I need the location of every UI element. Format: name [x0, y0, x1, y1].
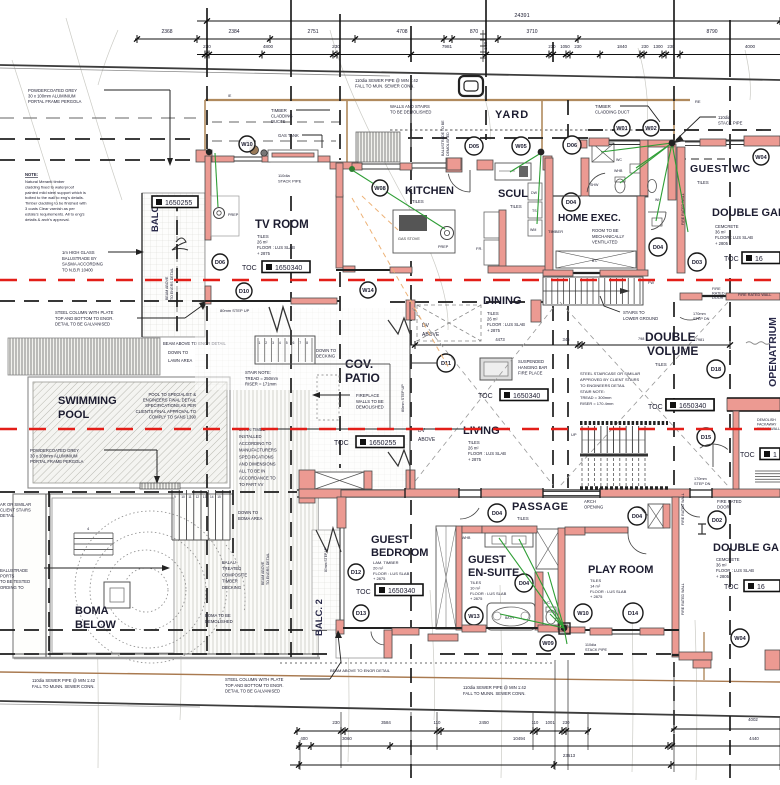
svg-text:VOLUME: VOLUME [647, 344, 698, 358]
svg-text:FLOOR : LUS SLAB: FLOOR : LUS SLAB [487, 322, 525, 327]
svg-text:16: 16 [757, 584, 765, 591]
svg-text:D05: D05 [469, 144, 479, 150]
svg-text:DOOR: DOOR [712, 296, 724, 300]
svg-text:CLADDING: CLADDING [271, 114, 293, 119]
svg-text:WALLS TO BE: WALLS TO BE [356, 399, 384, 404]
svg-text:170mm: 170mm [693, 312, 706, 316]
svg-text:FLOOR : LUS SLAB: FLOOR : LUS SLAB [715, 235, 753, 240]
svg-text:DOWN TO: DOWN TO [316, 348, 337, 353]
svg-text:PREP: PREP [438, 245, 449, 249]
svg-text:MECHANICALLY: MECHANICALLY [592, 234, 624, 239]
svg-text:BOMA: BOMA [75, 605, 109, 617]
svg-text:FALL TO MUN. SEWER CONN.: FALL TO MUN. SEWER CONN. [355, 84, 415, 89]
svg-text:SCUL: SCUL [498, 188, 528, 200]
svg-text:YARD: YARD [495, 109, 529, 121]
svg-text:4800: 4800 [263, 44, 274, 49]
svg-text:POOL: POOL [58, 409, 89, 421]
svg-text:WM: WM [530, 228, 536, 232]
svg-text:Timber cladding to be finished: Timber cladding to be finished with [25, 201, 86, 206]
svg-text:PORTS: PORTS [0, 574, 15, 579]
svg-text:B.C: B.C [592, 259, 598, 263]
svg-text:COMPLY TO SANS 1390: COMPLY TO SANS 1390 [149, 414, 197, 419]
svg-text:230: 230 [563, 720, 571, 725]
svg-text:BEAM ABOVE: BEAM ABOVE [165, 276, 169, 300]
svg-text:FALL TO MUNN. SEWER CONN.: FALL TO MUNN. SEWER CONN. [463, 691, 526, 696]
svg-text:DECKING: DECKING [222, 585, 241, 590]
svg-text:2450: 2450 [479, 720, 489, 725]
svg-text:UP: UP [571, 432, 577, 437]
svg-text:BOMA TO BE: BOMA TO BE [205, 613, 231, 618]
svg-text:ENGINEERS FINAL DETAIL: ENGINEERS FINAL DETAIL [143, 398, 197, 403]
svg-text:GUEST WC: GUEST WC [690, 163, 751, 175]
svg-text:D04: D04 [492, 511, 503, 517]
svg-text:DECKING: DECKING [316, 354, 335, 359]
svg-text:+ 2805: + 2805 [715, 241, 729, 246]
svg-text:1m HIGH GLASS: 1m HIGH GLASS [62, 250, 95, 255]
svg-text:DOOR: DOOR [717, 504, 730, 509]
svg-text:4440: 4440 [749, 736, 759, 741]
svg-text:GAS STOVE: GAS STOVE [398, 237, 420, 241]
svg-text:+ 2875: + 2875 [468, 457, 482, 462]
svg-text:DETAIL: DETAIL [0, 513, 15, 518]
svg-text:+ 2875: + 2875 [373, 576, 386, 581]
svg-text:TREAD = 300mm: TREAD = 300mm [580, 395, 612, 400]
svg-text:DEMOLISHED: DEMOLISHED [205, 619, 233, 624]
svg-text:400: 400 [300, 736, 308, 741]
svg-text:1300: 1300 [653, 44, 663, 49]
svg-text:DUCTS: DUCTS [271, 119, 286, 124]
svg-text:EN-SUITE: EN-SUITE [468, 567, 519, 579]
svg-text:4708: 4708 [396, 29, 407, 35]
svg-text:10 m²: 10 m² [470, 585, 481, 590]
svg-text:DEMOLISHED: DEMOLISHED [446, 132, 450, 156]
svg-text:SASMA ACCORDING: SASMA ACCORDING [62, 262, 103, 267]
svg-text:TILES: TILES [412, 199, 424, 204]
svg-text:D04: D04 [653, 245, 664, 251]
svg-text:BALAU: BALAU [222, 560, 236, 565]
svg-text:80mm STEP UP: 80mm STEP UP [324, 546, 328, 572]
svg-text:4473: 4473 [495, 337, 505, 342]
svg-text:2: 2 [265, 341, 267, 345]
svg-text:8790: 8790 [706, 29, 717, 35]
svg-text:W14: W14 [362, 288, 374, 294]
svg-text:POWDERCOATED GREY: POWDERCOATED GREY [30, 448, 79, 453]
svg-text:170mm: 170mm [694, 477, 707, 481]
svg-text:230: 230 [332, 720, 340, 725]
svg-text:STACK PIPE: STACK PIPE [278, 178, 302, 183]
svg-text:Natural Meranti timber: Natural Meranti timber [25, 179, 65, 184]
svg-text:TREAD = 250mm: TREAD = 250mm [245, 376, 278, 381]
svg-text:PATIO: PATIO [345, 371, 380, 385]
svg-text:12: 12 [196, 495, 200, 499]
svg-text:TILES: TILES [470, 580, 481, 585]
svg-text:FACKAWAY: FACKAWAY [757, 423, 777, 427]
svg-text:W10: W10 [577, 611, 589, 617]
svg-text:DINING: DINING [483, 295, 522, 307]
svg-text:STACK PIPE: STACK PIPE [585, 648, 608, 652]
svg-text:80mm STEP UP: 80mm STEP UP [401, 384, 405, 412]
svg-text:1050: 1050 [560, 44, 570, 49]
svg-text:HANGING BAR: HANGING BAR [518, 365, 547, 370]
svg-text:TO BE DEMOLISHED: TO BE DEMOLISHED [390, 110, 431, 115]
svg-text:TS: TS [532, 209, 537, 213]
svg-text:APPROVED BY CLIENT STAIRS: APPROVED BY CLIENT STAIRS [580, 377, 639, 382]
svg-text:STEP DN: STEP DN [694, 482, 711, 486]
svg-text:TOC: TOC [242, 265, 257, 272]
svg-text:SUSPENDED: SUSPENDED [518, 359, 544, 364]
svg-text:FIRE PLACE: FIRE PLACE [518, 371, 543, 376]
svg-text:TIMBER: TIMBER [595, 104, 611, 109]
svg-text:FALL TO MUNN. SEWER CONN.: FALL TO MUNN. SEWER CONN. [32, 684, 95, 689]
svg-text:3: 3 [272, 341, 274, 345]
svg-text:RISER = 170.4mm: RISER = 170.4mm [580, 401, 614, 406]
svg-text:ACCORDANCE TO: ACCORDANCE TO [239, 475, 276, 480]
svg-text:FLOOR : LUS SLAB: FLOOR : LUS SLAB [468, 451, 506, 456]
svg-text:ALL TO BE IN: ALL TO BE IN [239, 468, 265, 473]
svg-text:TILES: TILES [590, 578, 601, 583]
svg-text:GAS TANK: GAS TANK [278, 133, 299, 138]
svg-text:W01: W01 [616, 126, 628, 132]
svg-text:TIMBER: TIMBER [548, 229, 563, 234]
svg-text:20 m²: 20 m² [373, 565, 384, 570]
svg-text:TO N.B.R 10400: TO N.B.R 10400 [62, 267, 94, 272]
svg-text:TOP AND BOTTOM TO ENGR.: TOP AND BOTTOM TO ENGR. [55, 316, 113, 321]
svg-text:COMPOSITE: COMPOSITE [222, 572, 247, 577]
svg-text:BALUSTRADE: BALUSTRADE [0, 568, 28, 573]
svg-text:1650340: 1650340 [275, 265, 302, 272]
svg-text:3060: 3060 [342, 736, 352, 741]
svg-text:TO ENGINEERS DETAIL: TO ENGINEERS DETAIL [580, 383, 626, 388]
svg-text:ROOM TO BE: ROOM TO BE [592, 228, 619, 233]
svg-text:15: 15 [217, 495, 221, 499]
svg-text:23613: 23613 [563, 753, 576, 758]
svg-text:DOUBLE GA: DOUBLE GA [713, 542, 779, 554]
svg-text:30 x 100mm ALUMINIUM: 30 x 100mm ALUMINIUM [28, 94, 76, 99]
svg-text:26 m²: 26 m² [487, 317, 498, 322]
svg-text:cladding fixed to waterproof: cladding fixed to waterproof [25, 184, 75, 189]
svg-text:36 m²: 36 m² [716, 563, 727, 568]
svg-text:TO ENGRS DETAIL: TO ENGRS DETAIL [266, 553, 270, 585]
svg-text:TIMBER: TIMBER [222, 579, 238, 584]
svg-text:W04: W04 [734, 636, 746, 642]
svg-text:TILES: TILES [655, 362, 667, 367]
svg-text:1001: 1001 [545, 720, 555, 725]
svg-text:7981: 7981 [442, 44, 453, 49]
svg-text:+ 2875: + 2875 [257, 251, 271, 256]
svg-text:DETAIL TO BE GALVANISED: DETAIL TO BE GALVANISED [55, 322, 110, 327]
svg-text:D14: D14 [628, 611, 639, 617]
svg-text:230: 230 [574, 44, 582, 49]
svg-text:STAIRS TO: STAIRS TO [623, 310, 645, 315]
svg-text:4002: 4002 [748, 717, 758, 722]
svg-text:D15: D15 [701, 435, 711, 441]
svg-text:9: 9 [174, 495, 176, 499]
svg-text:LAWN AREA: LAWN AREA [168, 358, 192, 363]
svg-text:FLOOR : LUS SLAB: FLOOR : LUS SLAB [716, 568, 754, 573]
svg-text:CEMCRETE: CEMCRETE [716, 557, 740, 562]
svg-text:798: 798 [638, 337, 644, 341]
svg-text:3584: 3584 [381, 720, 391, 725]
svg-text:14 m²: 14 m² [590, 583, 601, 588]
svg-text:+ 2875: + 2875 [470, 596, 483, 601]
svg-text:8: 8 [306, 341, 308, 345]
svg-text:SPECIFICATIONS AS PER: SPECIFICATIONS AS PER [145, 403, 196, 408]
svg-text:D04: D04 [519, 581, 530, 587]
svg-text:110dia: 110dia [585, 643, 597, 647]
svg-text:DV: DV [422, 323, 430, 329]
svg-text:36 m²: 36 m² [715, 230, 726, 235]
svg-text:1650340: 1650340 [679, 403, 706, 410]
svg-text:DEMOLISHED: DEMOLISHED [356, 405, 384, 410]
svg-text:FLOOR : LUS SLAB: FLOOR : LUS SLAB [590, 589, 627, 594]
svg-text:W13: W13 [468, 614, 480, 620]
svg-text:DOWN TO: DOWN TO [238, 510, 259, 515]
svg-text:FLOOR : LUS SLAB: FLOOR : LUS SLAB [470, 591, 507, 596]
svg-text:FIRE RATED WALL: FIRE RATED WALL [681, 583, 685, 615]
svg-text:ARCH: ARCH [584, 499, 596, 504]
svg-text:110: 110 [532, 720, 539, 725]
svg-text:TILES: TILES [468, 440, 480, 445]
svg-text:W04: W04 [755, 155, 767, 161]
svg-text:STAIR NOTE:: STAIR NOTE: [245, 370, 271, 375]
svg-text:110dia: 110dia [278, 173, 290, 178]
svg-text:estate's requirements. All to: estate's requirements. All to eng's [25, 211, 85, 216]
svg-text:WC: WC [616, 158, 622, 162]
svg-text:D06: D06 [567, 143, 577, 149]
svg-text:DW: DW [531, 191, 538, 195]
svg-text:BEDROOM: BEDROOM [371, 547, 428, 559]
svg-text:LIVING: LIVING [463, 425, 500, 437]
svg-text:ABOVE: ABOVE [422, 332, 440, 338]
svg-text:PLAY ROOM: PLAY ROOM [588, 564, 653, 576]
svg-text:TOC: TOC [648, 404, 663, 411]
svg-text:10494: 10494 [513, 736, 526, 741]
svg-text:RATED: RATED [712, 292, 725, 296]
svg-text:TV ROOM: TV ROOM [255, 219, 309, 231]
svg-text:POWDERCOATED GREY: POWDERCOATED GREY [28, 88, 77, 93]
svg-text:TILES: TILES [517, 516, 529, 521]
svg-text:DOUBLE: DOUBLE [645, 330, 696, 344]
svg-text:BALC. 2: BALC. 2 [314, 599, 325, 636]
svg-text:TOC: TOC [356, 589, 371, 596]
svg-text:30 x 100mm ALUMINIUM: 30 x 100mm ALUMINIUM [30, 454, 78, 459]
svg-text:W10: W10 [241, 142, 253, 148]
svg-text:24391: 24391 [514, 13, 529, 19]
svg-text:870: 870 [470, 29, 479, 35]
svg-text:ABOVE: ABOVE [418, 437, 436, 443]
svg-text:2368: 2368 [161, 29, 172, 35]
svg-text:PORTAL FRAME PERGOLA: PORTAL FRAME PERGOLA [28, 99, 82, 104]
svg-text:230: 230 [641, 44, 649, 49]
svg-text:CLIENTS FINAL APPROVAL TO: CLIENTS FINAL APPROVAL TO [136, 409, 197, 414]
svg-text:AND DIMENSIONS: AND DIMENSIONS [239, 462, 276, 467]
svg-text:4000: 4000 [745, 44, 756, 49]
svg-text:TO BE TESTED: TO BE TESTED [0, 579, 30, 584]
svg-text:10: 10 [181, 495, 185, 499]
svg-text:TO PART VV: TO PART VV [239, 482, 264, 487]
svg-text:26 m²: 26 m² [468, 446, 479, 451]
svg-text:FIRE: FIRE [712, 287, 721, 291]
svg-text:STEEL COLUMN WITH PLATE: STEEL COLUMN WITH PLATE [55, 310, 114, 315]
svg-text:DETAIL TO BE GALVANISED: DETAIL TO BE GALVANISED [225, 689, 280, 694]
svg-text:GUEST: GUEST [468, 554, 506, 566]
svg-text:110dia SEWER PIPE @ MIN 1:42: 110dia SEWER PIPE @ MIN 1:42 [355, 78, 419, 83]
svg-text:W09: W09 [542, 641, 554, 647]
svg-text:BOMA AREA: BOMA AREA [238, 516, 263, 521]
svg-text:BALUSTRADE TO BE: BALUSTRADE TO BE [441, 120, 445, 156]
svg-text:CLADDING DUCT: CLADDING DUCT [595, 110, 630, 115]
svg-text:D02: D02 [712, 518, 722, 524]
svg-text:CEMCRETE: CEMCRETE [715, 224, 739, 229]
svg-text:4: 4 [279, 341, 281, 345]
svg-text:80mm STEP UP: 80mm STEP UP [220, 308, 250, 313]
svg-text:STEEL STAIRCASE OR SIMILAR: STEEL STAIRCASE OR SIMILAR [580, 371, 640, 376]
svg-text:W08: W08 [374, 186, 386, 192]
svg-text:PASSAGE: PASSAGE [512, 501, 568, 513]
svg-text:TILES: TILES [257, 234, 269, 239]
svg-text:CLIENT STAIRS: CLIENT STAIRS [0, 508, 31, 513]
svg-text:FIRE RATED WALL: FIRE RATED WALL [681, 493, 685, 525]
svg-text:SPECIFICATIONS: SPECIFICATIONS [239, 455, 274, 460]
svg-text:11: 11 [188, 495, 192, 499]
svg-text:D04: D04 [566, 200, 577, 206]
svg-text:FLOOR : LUS SLAB: FLOOR : LUS SLAB [257, 245, 295, 250]
svg-text:TOC: TOC [724, 584, 739, 591]
svg-text:1650340: 1650340 [513, 393, 540, 400]
svg-text:LAM. TIMBER: LAM. TIMBER [373, 560, 399, 565]
svg-text:7981: 7981 [696, 338, 704, 342]
svg-text:NOTE:: NOTE: [25, 172, 38, 177]
svg-text:D03: D03 [692, 260, 702, 266]
svg-text:TOC: TOC [724, 256, 739, 263]
svg-text:110dia SEWER PIPE @ MIN 1:42: 110dia SEWER PIPE @ MIN 1:42 [463, 685, 527, 690]
svg-text:13: 13 [203, 495, 207, 499]
svg-text:ACCORDING TO: ACCORDING TO [239, 441, 272, 446]
svg-text:FLOOR : LUS SLAB: FLOOR : LUS SLAB [373, 571, 410, 576]
svg-text:110dia SEWER PIPE @ MIN 1:42: 110dia SEWER PIPE @ MIN 1:42 [32, 678, 96, 683]
svg-text:BEAM ABOVE TO ENGR DETAIL: BEAM ABOVE TO ENGR DETAIL [330, 668, 391, 673]
svg-text:bolted to the wall to eng's de: bolted to the wall to eng's details. [25, 195, 84, 200]
svg-text:FIREPLACE: FIREPLACE [356, 393, 379, 398]
svg-text:230: 230 [332, 44, 340, 49]
svg-text:1650255: 1650255 [165, 200, 192, 207]
svg-text:3 coats Clear varnish as per: 3 coats Clear varnish as per [25, 206, 75, 211]
svg-text:6: 6 [293, 341, 295, 345]
svg-text:PORTAL FRAME PERGOLA: PORTAL FRAME PERGOLA [30, 459, 84, 464]
svg-text:TIMBER: TIMBER [271, 108, 287, 113]
svg-text:STACK PIPE: STACK PIPE [718, 121, 743, 126]
svg-text:SHW: SHW [590, 183, 599, 187]
svg-text:TREATED: TREATED [222, 566, 241, 571]
svg-text:110dia: 110dia [718, 115, 731, 120]
svg-text:DOUBLE GAR: DOUBLE GAR [712, 207, 780, 219]
svg-text:D18: D18 [711, 367, 721, 373]
svg-text:W02: W02 [645, 126, 657, 132]
svg-text:16: 16 [755, 256, 763, 263]
svg-text:HOME EXEC.: HOME EXEC. [558, 213, 621, 224]
svg-text:WALLS AND STAIRS: WALLS AND STAIRS [390, 104, 430, 109]
svg-text:BALUSTRADE BY: BALUSTRADE BY [62, 256, 97, 261]
svg-text:PREP: PREP [228, 213, 239, 217]
svg-text:TOP AND BOTTOM TO ENGR.: TOP AND BOTTOM TO ENGR. [225, 683, 283, 688]
svg-text:WHB: WHB [462, 536, 471, 540]
svg-text:KITCHEN: KITCHEN [405, 185, 454, 197]
svg-text:110: 110 [434, 720, 442, 725]
svg-text:1: 1 [259, 341, 261, 345]
svg-text:STEEL COLUMN WITH PLATE: STEEL COLUMN WITH PLATE [225, 677, 284, 682]
svg-text:345: 345 [563, 337, 571, 342]
svg-text:TOC: TOC [740, 452, 755, 459]
svg-text:SWIMMING: SWIMMING [58, 395, 117, 407]
svg-text:WHB: WHB [614, 169, 623, 173]
svg-text:+ 2875: + 2875 [487, 328, 501, 333]
svg-text:FIRE RATED WALL: FIRE RATED WALL [738, 293, 772, 297]
svg-text:RE: RE [695, 99, 701, 104]
svg-text:OPENING: OPENING [584, 504, 603, 509]
svg-text:DEMOLISH: DEMOLISH [757, 418, 776, 422]
svg-text:W05: W05 [515, 144, 527, 150]
svg-text:TO ENGRS DETAIL: TO ENGRS DETAIL [170, 268, 174, 300]
svg-text:+ 2805: + 2805 [716, 574, 730, 579]
svg-text:2751: 2751 [307, 29, 318, 35]
svg-text:LOWER GROUND: LOWER GROUND [623, 316, 658, 321]
svg-text:painted mild steel support whi: painted mild steel support which is [25, 190, 86, 195]
svg-text:AR OR SIMILAR: AR OR SIMILAR [0, 502, 31, 507]
svg-text:D04: D04 [632, 514, 643, 520]
svg-text:RISER = 171mm: RISER = 171mm [245, 382, 277, 387]
svg-text:STEP DN: STEP DN [693, 317, 710, 321]
svg-text:TOC: TOC [334, 440, 349, 447]
svg-text:1650340: 1650340 [388, 588, 415, 595]
svg-text:details & arch's approval.: details & arch's approval. [25, 217, 70, 222]
svg-text:POOL TO SPECIALIST &: POOL TO SPECIALIST & [148, 392, 196, 397]
svg-text:1650255: 1650255 [369, 440, 396, 447]
svg-text:VENTILATED: VENTILATED [592, 240, 618, 245]
svg-text:FIRE RATED: FIRE RATED [717, 499, 742, 504]
svg-text:14: 14 [210, 495, 214, 499]
svg-text:ORDING TO: ORDING TO [0, 585, 24, 590]
svg-text:TOC: TOC [478, 393, 493, 400]
svg-text:TILES: TILES [510, 204, 522, 209]
svg-text:+ 2875: + 2875 [590, 594, 603, 599]
svg-text:D10: D10 [239, 289, 249, 295]
svg-text:3710: 3710 [526, 29, 537, 35]
svg-text:INSTALLED: INSTALLED [239, 434, 262, 439]
svg-text:2384: 2384 [228, 29, 239, 35]
svg-text:BEAM ABOVE: BEAM ABOVE [261, 561, 265, 585]
svg-text:OPENATRIUM: OPENATRIUM [767, 317, 779, 387]
svg-text:MANUFACTURERS: MANUFACTURERS [239, 448, 277, 453]
svg-text:1840: 1840 [617, 44, 628, 49]
svg-text:D13: D13 [356, 611, 366, 617]
svg-text:D06: D06 [215, 260, 225, 266]
svg-text:TILES: TILES [697, 180, 709, 185]
svg-text:1: 1 [773, 452, 777, 459]
svg-text:DOWN TO: DOWN TO [168, 350, 189, 355]
svg-text:D11: D11 [441, 361, 451, 367]
svg-text:D12: D12 [351, 570, 361, 576]
svg-text:GUEST: GUEST [371, 534, 409, 546]
svg-text:26 m²: 26 m² [257, 240, 268, 245]
svg-text:FW: FW [648, 281, 654, 285]
svg-text:5: 5 [286, 341, 288, 345]
svg-text:TILES: TILES [487, 311, 499, 316]
svg-text:FR.: FR. [476, 246, 482, 251]
svg-text:STAIR NOTE:: STAIR NOTE: [580, 389, 605, 394]
svg-text:7: 7 [299, 341, 301, 345]
